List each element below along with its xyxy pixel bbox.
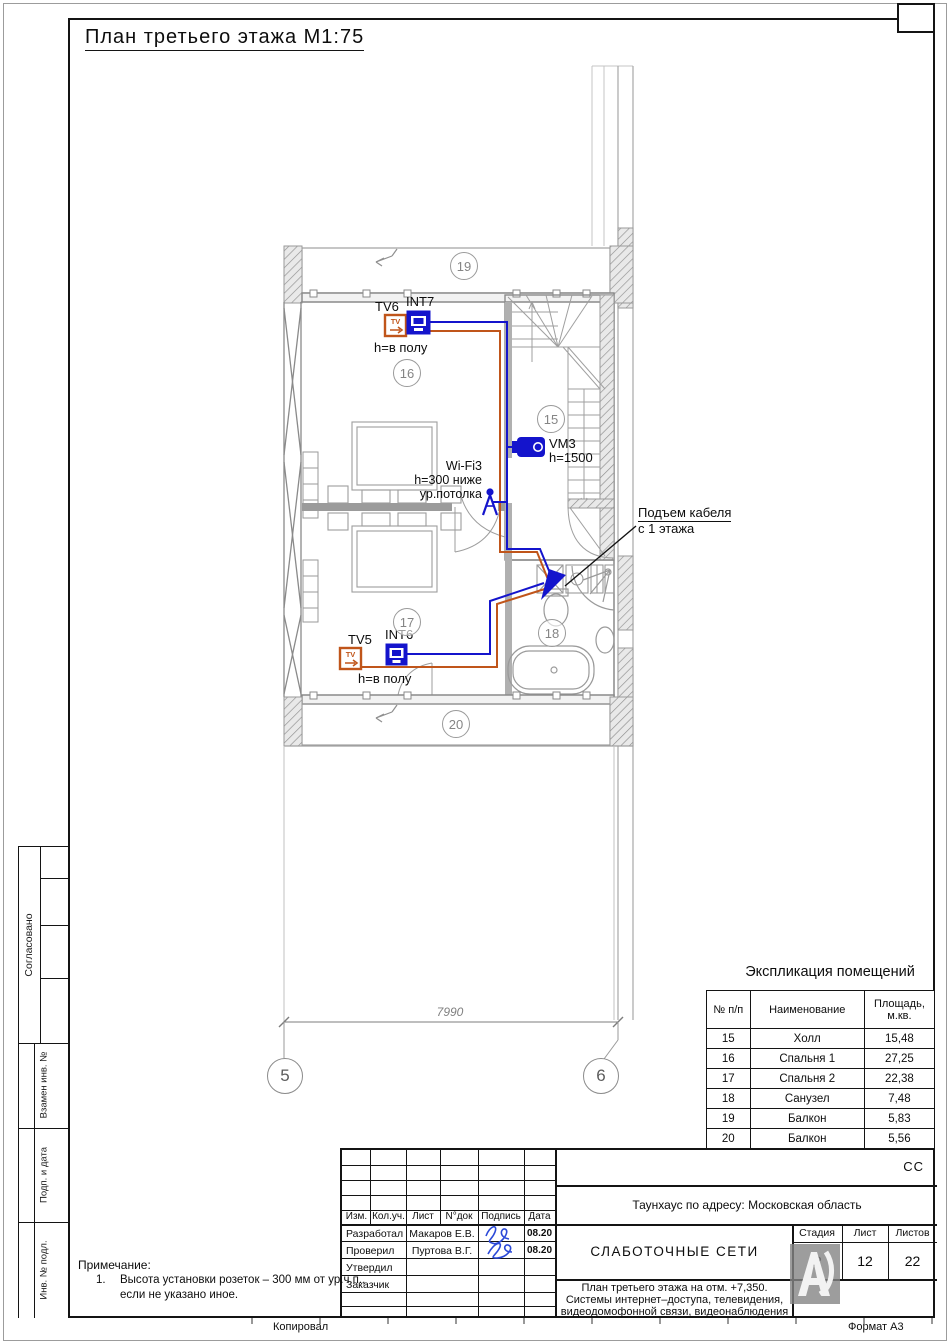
label-wifi-height2: ур.потолка [385, 487, 482, 501]
name-proveril: Пуртова В.Г. [406, 1245, 478, 1257]
dimension-7990: 7990 [420, 1005, 480, 1019]
format-label: Формат А3 [848, 1321, 904, 1333]
col-koluch: Кол.уч. [371, 1211, 406, 1222]
margin-ticks [252, 1318, 932, 1324]
explication-row: 17Спальня 222,38 [707, 1069, 935, 1089]
stamp-inv-no: Инв. № подл. [39, 1240, 50, 1299]
room-badge-16: 16 [393, 359, 421, 387]
room-badge-20: 20 [442, 710, 470, 738]
stage-header: Стадия [792, 1224, 842, 1242]
video-intercom-icon-vm3 [512, 437, 545, 457]
col-ndoc: N°док [440, 1211, 478, 1222]
col-area: Площадь, м.кв. [864, 991, 934, 1029]
doc-description-1: План третьего этажа на отм. +7,350. [559, 1282, 790, 1294]
doc-description-3: видеодомофонной связи, видеонаблюдения [559, 1306, 790, 1318]
company-logo [790, 1244, 840, 1304]
note-line-1: Высота установки розеток – 300 мм от ур.… [120, 1274, 365, 1286]
internet-outlet-icon-int6 [386, 644, 407, 665]
doc-description-2: Системы интернет–доступа, телевидения, [559, 1294, 790, 1306]
svg-text:TV: TV [346, 650, 356, 659]
explication-row: 16Спальня 127,25 [707, 1049, 935, 1069]
name-razrabotal: Макаров Е.В. [406, 1228, 478, 1240]
drawing-sheet: TV TV [0, 0, 950, 1344]
role-proveril: Проверил [346, 1245, 394, 1257]
col-izm: Изм. [342, 1211, 371, 1222]
label-wifi: Wi-Fi3 [385, 459, 482, 473]
col-list: Лист [406, 1211, 440, 1222]
role-razrabotal: Разработал [346, 1228, 403, 1240]
explication-row: 20Балкон5,56 [707, 1129, 935, 1149]
col-sign: Подпись [478, 1211, 524, 1222]
stamp-sign-date: Подп. и дата [39, 1147, 50, 1203]
explication-row: 15Холл15,48 [707, 1029, 935, 1049]
stamp-replace-inv: Взамен инв. № [39, 1052, 50, 1119]
axis-bubble-5: 5 [267, 1058, 303, 1094]
label-wifi-height1: h=300 ниже [385, 473, 482, 487]
copied-label: Копировал [273, 1321, 328, 1333]
svg-text:TV: TV [391, 317, 401, 326]
label-tv6: TV6 [375, 299, 399, 314]
room-badge-18: 18 [538, 619, 566, 647]
note-item-number: 1. [96, 1274, 106, 1286]
label-cable-riser-1: Подъем кабеля [638, 505, 731, 522]
label-vm3-height: h=1500 [549, 450, 593, 465]
tv-outlet-icon-tv5: TV [340, 648, 361, 669]
note-line-2: если не указано иное. [120, 1289, 238, 1301]
date-proveril: 08.20 [524, 1245, 555, 1256]
col-num: № п/п [707, 991, 751, 1029]
explication-title: Экспликация помещений [740, 964, 920, 980]
note-heading: Примечание: [78, 1258, 151, 1272]
explication-header-row: № п/п Наименование Площадь, м.кв. [707, 991, 935, 1029]
page-title: План третьего этажа М1:75 [85, 26, 364, 49]
doc-title: СЛАБОТОЧНЫЕ СЕТИ [557, 1224, 792, 1279]
col-name: Наименование [750, 991, 864, 1029]
signature-razrabotal [486, 1227, 509, 1244]
construction-lines [592, 66, 633, 246]
label-cable-riser-2: с 1 этажа [638, 521, 694, 536]
explication-row: 19Балкон5,83 [707, 1109, 935, 1129]
sheets-value: 22 [888, 1242, 937, 1279]
sheet-value: 12 [842, 1242, 888, 1279]
title-block: Изм. Кол.уч. Лист N°док Подпись Дата Раз… [340, 1148, 935, 1318]
object-name: Таунхаус по адресу: Московская область [557, 1186, 937, 1224]
sheet-header: Лист [842, 1224, 888, 1242]
axis-bubble-6: 6 [583, 1058, 619, 1094]
label-vm3: VM3 [549, 436, 576, 451]
label-tv5: TV5 [348, 632, 372, 647]
tv-outlet-icon-tv6: TV [385, 315, 406, 336]
label-int7: INT7 [406, 294, 434, 309]
explication-row: 18Санузел7,48 [707, 1089, 935, 1109]
wall-left [284, 302, 318, 697]
room-badge-19: 19 [450, 252, 478, 280]
stamp-agreed: Согласовано [23, 913, 35, 976]
doc-code: СС [692, 1159, 924, 1174]
sheets-header: Листов [888, 1224, 937, 1242]
signatures [478, 1222, 524, 1266]
internet-outlet-icon-int7 [407, 311, 430, 334]
label-tv6-height: h=в полу [374, 340, 427, 355]
room-badge-15: 15 [537, 405, 565, 433]
explication-table: № п/п Наименование Площадь, м.кв. 15Холл… [706, 990, 935, 1149]
room-badge-17: 17 [393, 608, 421, 636]
signature-proveril [488, 1243, 512, 1258]
bed-room17 [328, 513, 461, 592]
label-tv5-height: h=в полу [358, 671, 411, 686]
role-utverdil: Утвердил [346, 1262, 393, 1274]
date-razrabotal: 08.20 [524, 1228, 555, 1239]
col-date: Дата [524, 1211, 555, 1222]
wall-top [302, 290, 614, 302]
